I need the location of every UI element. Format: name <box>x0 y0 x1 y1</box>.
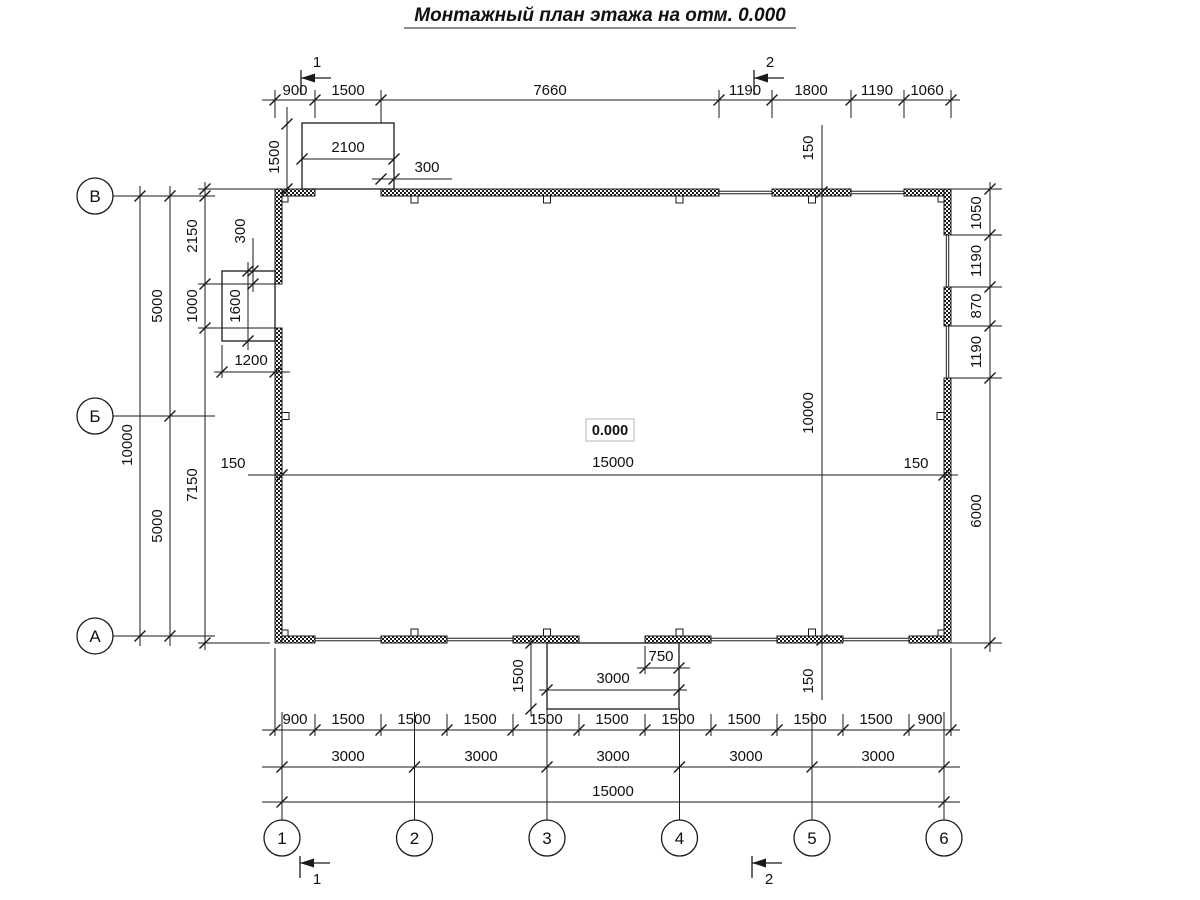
dim-label: 150 <box>800 135 817 160</box>
dim-label: 1500 <box>510 659 527 692</box>
grid-label: А <box>89 627 101 646</box>
dim-label: 1190 <box>968 245 985 277</box>
dim-label: 1600 <box>227 289 244 322</box>
dim-label: 1500 <box>793 711 826 728</box>
dim-label: 1500 <box>463 711 496 728</box>
dim-label: 1500 <box>661 711 694 728</box>
grid-label: 5 <box>807 829 816 848</box>
dim-label: 3000 <box>729 748 762 765</box>
dim-label: 10000 <box>119 424 136 466</box>
dim-label: 150 <box>800 668 817 693</box>
dim-label: 3000 <box>331 748 364 765</box>
dim-label: 1500 <box>727 711 760 728</box>
dim-label: 1000 <box>184 289 201 322</box>
dim-label: 1060 <box>910 82 943 99</box>
dim-label: 1190 <box>729 82 761 99</box>
dim-label: 300 <box>232 218 249 243</box>
dim-label: 1190 <box>968 336 985 368</box>
grid-label: 6 <box>939 829 948 848</box>
floor-plan-drawing: Монтажный план этажа на отм. 0.000 <box>0 0 1200 900</box>
dim-label: 3000 <box>596 748 629 765</box>
dim-label: 150 <box>903 455 928 472</box>
dim-label: 1190 <box>861 82 893 99</box>
drawing-title: Монтажный план этажа на отм. 0.000 <box>404 5 796 28</box>
dim-label: 870 <box>968 293 985 318</box>
section-label: 2 <box>766 54 774 71</box>
dim-label: 7150 <box>184 468 201 501</box>
dim-label: 5000 <box>149 289 166 322</box>
dim-label: 150 <box>220 455 245 472</box>
dim-label: 1500 <box>595 711 628 728</box>
dim-label: 3000 <box>861 748 894 765</box>
dim-label: 15000 <box>592 454 634 471</box>
dim-label: 1500 <box>859 711 892 728</box>
grid-label: 1 <box>277 829 286 848</box>
dim-label: 2150 <box>184 219 201 252</box>
grid-label: 3 <box>542 829 551 848</box>
dim-label: 1500 <box>266 140 283 173</box>
dim-label: 300 <box>414 159 439 176</box>
grid-label: Б <box>89 407 100 426</box>
dim-label: 900 <box>282 82 307 99</box>
canvas-background <box>0 0 1200 900</box>
dim-label: 1800 <box>794 82 827 99</box>
grid-label: В <box>89 187 100 206</box>
dim-label: 5000 <box>149 509 166 542</box>
dim-label: 3000 <box>464 748 497 765</box>
dim-label: 7660 <box>533 82 566 99</box>
grid-label: 4 <box>675 829 684 848</box>
dim-label: 15000 <box>592 783 634 800</box>
dim-label: 3000 <box>596 670 629 687</box>
dim-label: 1500 <box>529 711 562 728</box>
section-label: 1 <box>313 871 321 888</box>
dim-label: 900 <box>282 711 307 728</box>
page-title: Монтажный план этажа на отм. 0.000 <box>414 5 786 26</box>
section-label: 1 <box>313 54 321 71</box>
elevation-value: 0.000 <box>592 423 628 439</box>
dim-label: 1050 <box>968 196 985 229</box>
dim-label: 750 <box>648 648 673 665</box>
dim-label: 1500 <box>331 82 364 99</box>
dim-label: 1200 <box>234 352 267 369</box>
dim-label: 2100 <box>331 139 364 156</box>
dim-label: 900 <box>917 711 942 728</box>
dim-label: 10000 <box>800 392 817 434</box>
dim-label: 1500 <box>331 711 364 728</box>
section-label: 2 <box>765 871 773 888</box>
grid-label: 2 <box>410 829 419 848</box>
dim-label: 6000 <box>968 494 985 527</box>
